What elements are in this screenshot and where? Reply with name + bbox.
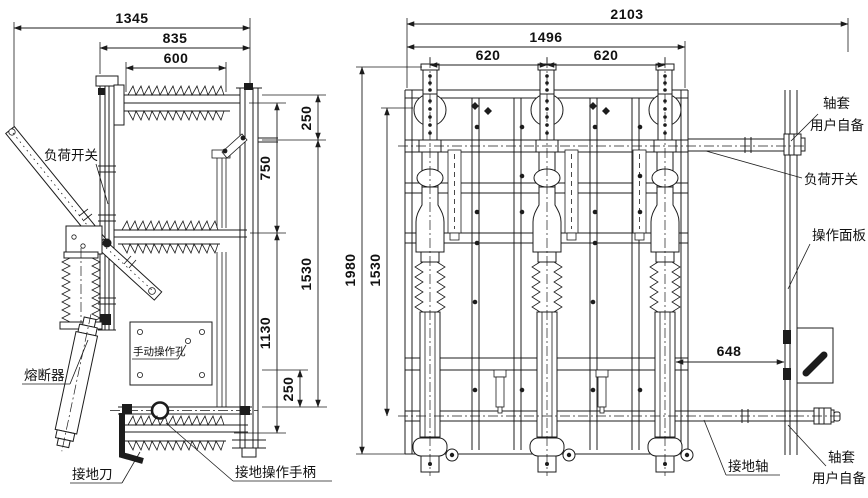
junction-box [66,226,102,254]
side-view-drawing: 手动操作孔 13 [6,10,332,483]
manual-hole-label: 手动操作孔 [133,345,186,358]
side-frame [212,83,278,457]
pole-2 [530,58,575,476]
dim-1980: 1980 [342,253,358,286]
label-earth-knife: 接地刀 [72,466,113,482]
dim-250-bottom: 250 [280,377,296,402]
dim-1530-side: 1530 [298,257,314,290]
switchgear-dimension-drawing: 手动操作孔 13 [0,0,868,498]
dim-835: 835 [163,30,188,46]
front-view-drawing: 2103 1496 620 620 1980 1530 648 轴套 用户自备 … [342,6,866,486]
label-load-switch-front: 负荷开关 [804,172,858,187]
dim-1530-front: 1530 [367,253,383,286]
dim-2103: 2103 [610,6,643,22]
manual-hole [185,338,190,343]
label-operating-panel: 操作面板 [812,228,866,243]
top-insulator [114,85,240,125]
label-sleeve-top-1: 轴套 [823,96,851,111]
arm-pivot [103,239,112,248]
operating-panel-box [797,328,833,383]
dim-750: 750 [257,156,273,181]
middle-insulator [114,221,247,253]
label-sleeve-bottom-2: 用户自备 [812,470,866,486]
pole-1 [413,58,458,476]
dim-648: 648 [717,343,742,359]
earthing-assembly [110,403,258,462]
label-earth-handle: 接地操作手柄 [235,464,316,480]
top-shaft [688,134,805,155]
dim-1496: 1496 [529,29,562,45]
shaft-sleeve-top [784,134,801,155]
dim-600: 600 [164,50,189,66]
dim-620-right: 620 [594,47,619,63]
label-earth-shaft: 接地轴 [728,458,769,474]
dim-620-left: 620 [476,47,501,63]
dim-1130: 1130 [257,317,273,349]
technical-drawing-page: 手动操作孔 13 [0,0,868,498]
label-sleeve-top-2: 用户自备 [810,117,864,133]
earth-knife-blade [122,413,143,461]
pole-3 [648,58,693,476]
label-load-switch-side: 负荷开关 [44,148,98,163]
dim-250-top: 250 [298,106,314,131]
earth-shaft-ring [152,403,168,419]
label-fuse: 熔断器 [24,368,65,383]
dim-1345: 1345 [115,10,148,26]
label-sleeve-bottom-1: 轴套 [828,450,856,465]
manual-hole-panel: 手动操作孔 [130,322,212,385]
